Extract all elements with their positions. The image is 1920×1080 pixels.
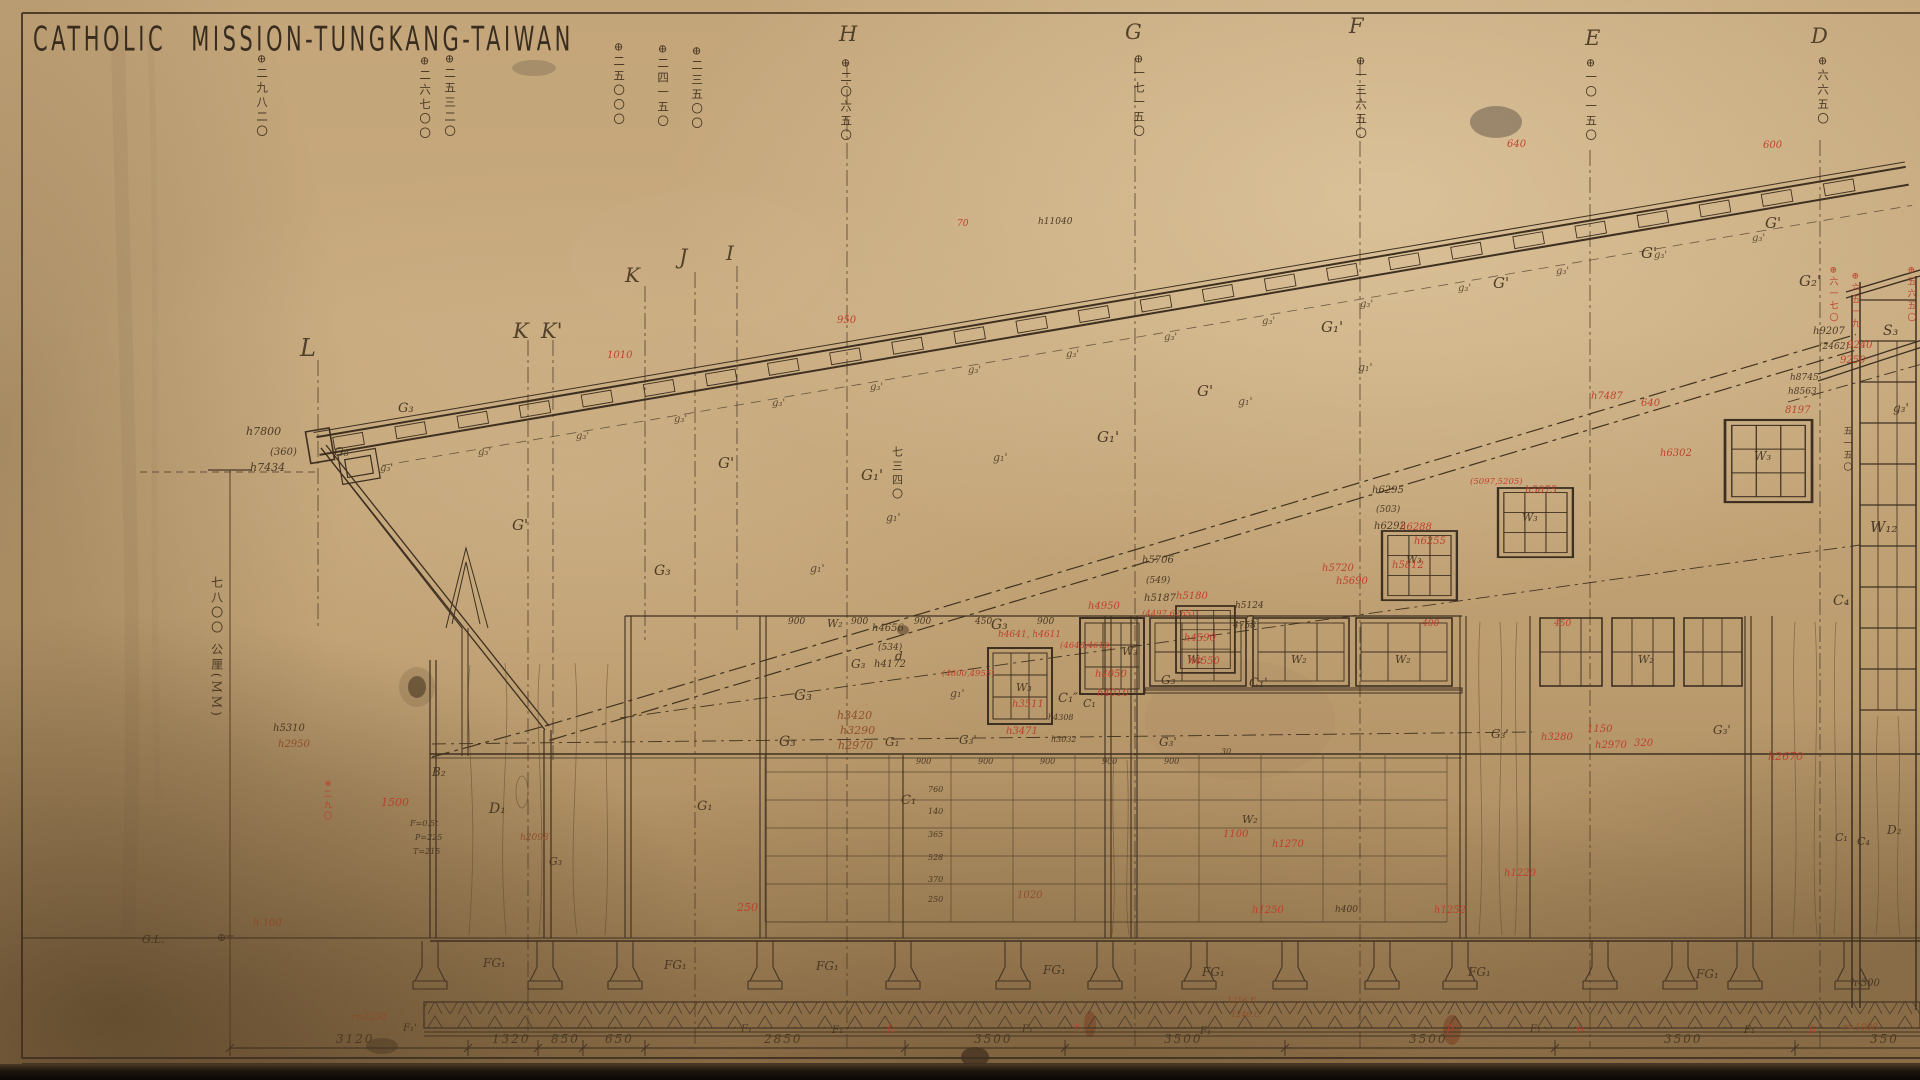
- bottom-dimension: 1320: [492, 1033, 531, 1045]
- annotation-label: h3420: [837, 710, 872, 721]
- purlin-mark: g₃': [1262, 317, 1275, 327]
- annotation-label: FG₁: [1696, 968, 1719, 980]
- annotation-label: h5690: [1336, 577, 1368, 587]
- annotation-label: h6288: [1400, 523, 1432, 533]
- annotation-label: h4641, h4611: [998, 631, 1061, 640]
- annotation-label: F₁: [1530, 1025, 1541, 1035]
- annotation-label: h8745: [1790, 374, 1819, 383]
- annotation-label: D₂: [1887, 824, 1901, 836]
- annotation-label: f₁: [1074, 1025, 1082, 1035]
- annotation-label: h 100: [253, 919, 282, 929]
- bottom-dimension: 350: [1870, 1033, 1899, 1045]
- annotation-label: 760: [928, 786, 943, 794]
- annotation-label: h2970: [1595, 741, 1627, 751]
- annotation-label: G₃: [991, 618, 1008, 632]
- annotation-label: h4308: [1048, 714, 1074, 722]
- annotation-label: C₁″: [1058, 692, 1078, 705]
- left-scale-label: 七八〇〇 公厘(MM): [210, 576, 223, 719]
- purlin-mark: g₃': [772, 399, 785, 409]
- purlin-mark: g₃': [576, 432, 589, 442]
- annotation-label: h5706: [1142, 556, 1174, 566]
- annotation-label: (549): [1146, 577, 1170, 586]
- annotation-label: 600: [1763, 141, 1782, 151]
- grid-letter: H: [839, 24, 857, 45]
- annotation-label: 900: [914, 618, 931, 627]
- annotation-label: F₁: [1744, 1026, 1755, 1036]
- annotation-label: h3290: [840, 725, 875, 736]
- annotation-label: (4648,4610): [1060, 642, 1113, 651]
- annotation-label: W₂: [1291, 654, 1307, 665]
- annotation-label: 400: [1422, 620, 1439, 629]
- annotation-label: h3280: [1541, 733, 1573, 743]
- annotation-label: W₂: [827, 618, 843, 629]
- annotation-label: G₃: [851, 658, 865, 670]
- annotation-label: F₁: [1200, 1027, 1211, 1037]
- annotation-label: ⊕六五一九: [1849, 272, 1858, 331]
- annotation-label: h5187: [1144, 594, 1176, 604]
- grid-letter: G: [1125, 22, 1142, 43]
- elevation-mark: ⊕二九八二〇: [256, 54, 268, 139]
- annotation-label: C₁: [901, 794, 916, 807]
- annotation-label: T=215: [413, 848, 440, 856]
- annotation-label: f₁: [1809, 1025, 1817, 1035]
- annotation-label: G₁: [697, 800, 713, 813]
- annotation-label: 1100: [1223, 830, 1248, 840]
- annotation-label: G₁': [1097, 430, 1119, 445]
- annotation-label: G₁': [1321, 320, 1343, 335]
- bottom-dimension: 2850: [764, 1033, 803, 1045]
- annotation-label: G₂': [1799, 274, 1821, 289]
- annotation-label: 900: [1040, 758, 1055, 766]
- annotation-label: 528: [928, 854, 943, 862]
- annotation-label: F₁': [403, 1024, 417, 1034]
- annotation-label: 640: [1507, 140, 1526, 150]
- annotation-label: W₃: [1754, 450, 1771, 462]
- purlin-mark: g₁': [1358, 362, 1372, 373]
- annotation-label: F₁: [1022, 1025, 1033, 1035]
- annotation-label: C₁': [1249, 677, 1268, 690]
- annotation-label: h1220: [1504, 869, 1536, 879]
- annotation-label: W₂: [1395, 654, 1411, 665]
- annotation-label: r=2250: [351, 1014, 386, 1023]
- annotation-label: 七三四〇: [891, 446, 903, 502]
- annotation-label: G': [1197, 384, 1213, 399]
- purlin-mark: g₃': [1752, 234, 1765, 244]
- annotation-label: W₁₂: [1870, 520, 1897, 535]
- annotation-label: r=1000: [1843, 1024, 1878, 1033]
- annotation-label: h6302: [1660, 449, 1692, 459]
- annotation-label: h2950: [278, 740, 310, 750]
- annotation-label: W₂: [1638, 654, 1654, 665]
- annotation-label: W₂: [1187, 654, 1203, 665]
- annotation-label: 900: [788, 618, 805, 627]
- annotation-label: 900: [851, 618, 868, 627]
- grid-letter: F: [1349, 16, 1364, 37]
- annotation-label: FG₁: [483, 957, 506, 969]
- annotation-label: 8197: [1785, 406, 1810, 416]
- annotation-label: h6292: [1374, 522, 1406, 532]
- annotation-label: h3471: [1006, 727, 1038, 737]
- elevation-mark: ⊕一七一五〇: [1133, 54, 1145, 139]
- annotation-label: h4550: [1188, 657, 1220, 667]
- annotation-label: h2670: [1768, 751, 1803, 762]
- annotation-label: h4010: [1097, 689, 1129, 699]
- grid-letter: D: [1811, 26, 1828, 47]
- bottom-dimension: 3500: [1409, 1033, 1448, 1045]
- annotation-label: h6295: [1372, 486, 1404, 496]
- annotation-label: (4497,6265): [1142, 610, 1195, 619]
- purlin-mark: g₃': [1458, 284, 1471, 294]
- bottom-dimension: 3500: [1664, 1033, 1703, 1045]
- annotation-label: 900: [1102, 758, 1117, 766]
- annotation-label: (5097,5205): [1470, 478, 1523, 487]
- elevation-mark: ⊕二四一五〇: [657, 44, 669, 129]
- annotation-label: G₃: [794, 688, 812, 703]
- annotation-label: h5875: [1525, 486, 1557, 496]
- annotation-label: h5180: [1176, 592, 1208, 602]
- annotation-label: G₃': [1491, 728, 1509, 740]
- purlin-mark: g₃': [478, 448, 491, 458]
- annotation-label: h4172: [874, 660, 906, 670]
- grid-letter: L: [300, 336, 316, 360]
- annotation-label: h4050: [1095, 670, 1127, 680]
- annotation-label: G₃': [959, 734, 977, 746]
- annotation-label: h7434: [250, 462, 285, 473]
- annotation-label: G₃': [1159, 736, 1177, 748]
- annotation-label: h5310: [273, 724, 305, 734]
- purlin-mark: g₃': [1360, 300, 1373, 310]
- annotation-label: f₁: [1447, 1024, 1455, 1034]
- annotation-label: 1216.F.: [1227, 997, 1257, 1005]
- annotation-label: 900: [1164, 758, 1179, 766]
- annotation-label: FG₁: [1202, 966, 1225, 978]
- annotation-label: G₃: [779, 735, 796, 749]
- annotation-label: h9207: [1813, 327, 1845, 337]
- bottom-dimension: 3500: [974, 1033, 1013, 1045]
- elevation-mark: ⊕六六五〇: [1817, 56, 1829, 127]
- purlin-mark: g₁': [950, 688, 964, 699]
- annotation-label: g₃': [1893, 402, 1909, 414]
- annotation-label: h5720: [1322, 564, 1354, 574]
- annotation-label: 450: [1554, 620, 1571, 629]
- annotation-label: G₃: [398, 402, 414, 415]
- annotation-label: 1010: [607, 351, 632, 361]
- annotation-label: W₃: [1122, 646, 1138, 657]
- purlin-mark: g₃': [1164, 333, 1177, 343]
- annotation-label: f₁: [1577, 1024, 1585, 1034]
- purlin-mark: g₃': [870, 383, 883, 393]
- annotation-label: G.L.: [142, 934, 165, 945]
- annotation-label: 370: [928, 876, 943, 884]
- annotation-label: 250: [737, 902, 758, 913]
- annotation-label: G₁: [885, 736, 899, 748]
- annotation-label: G₃': [1713, 724, 1731, 736]
- annotation-label: 900: [1037, 618, 1054, 627]
- grid-letter: K: [513, 321, 529, 342]
- annotation-label: h4950: [1088, 602, 1120, 612]
- annotation-label: h1252: [1434, 906, 1466, 916]
- annotation-label: h8563: [1788, 388, 1817, 397]
- annotation-label: f₁: [887, 1025, 895, 1035]
- annotation-label: 250: [928, 896, 943, 904]
- purlin-mark: g₁': [810, 563, 824, 574]
- annotation-label: W₃: [1406, 554, 1422, 565]
- annotation-label: 1150: [1587, 725, 1612, 735]
- annotation-label: G': [1765, 216, 1781, 231]
- annotation-label: G₃: [654, 564, 671, 578]
- annotation-label: 1020: [1017, 891, 1042, 901]
- annotation-label: G': [512, 518, 528, 533]
- annotation-label: (4600,4955): [942, 670, 995, 679]
- elevation-mark: ⊕二六七〇〇: [419, 56, 431, 141]
- annotation-label: 320: [1634, 739, 1653, 749]
- annotation-label: W₃: [1522, 512, 1538, 523]
- purlin-mark: g₁': [1238, 396, 1252, 407]
- elevation-mark: ⊕二五三二〇: [444, 54, 456, 139]
- annotation-label: F₁: [832, 1026, 843, 1036]
- annotation-label: 365: [928, 831, 943, 839]
- annotation-label: 70: [957, 220, 968, 229]
- annotation-label: ⊕六一七〇: [1827, 266, 1836, 325]
- annotation-label: G₃: [549, 856, 562, 867]
- purlin-mark: g₃': [968, 366, 981, 376]
- annotation-label: G₈: [334, 446, 348, 458]
- annotation-label: W₃: [1016, 682, 1032, 693]
- annotation-label: 140: [928, 808, 943, 816]
- annotation-label: (503): [1376, 506, 1400, 515]
- annotation-label: h6255: [1414, 537, 1446, 547]
- annotation-label: h1250: [1252, 906, 1284, 916]
- purlin-mark: g₁': [886, 512, 900, 523]
- annotation-label: FG₁: [816, 960, 839, 972]
- annotation-label: h3511: [1012, 700, 1044, 710]
- annotation-label: h11040: [1038, 218, 1072, 227]
- purlin-mark: g₃': [1556, 267, 1569, 277]
- annotation-label: S₃: [1883, 324, 1898, 338]
- annotation-label: FG₁: [664, 959, 687, 971]
- annotation-label: FG₁: [1043, 964, 1066, 976]
- annotation-label: D₁: [489, 802, 506, 816]
- annotation-label: G₃: [1161, 674, 1175, 686]
- annotation-label: G': [1493, 276, 1509, 291]
- drawing-sheet: CATHOLIC MISSION-TUNGKANG-TAIWAN LKK'KJI…: [0, 0, 1920, 1080]
- annotation-label: h5812: [1392, 561, 1424, 571]
- annotation-label: 900: [916, 758, 931, 766]
- bottom-dimension: 3120: [336, 1033, 375, 1045]
- elevation-mark: ⊕二五〇〇〇: [613, 42, 625, 127]
- bottom-dimension: 850: [551, 1033, 580, 1045]
- elevation-mark: ⊕二〇六五〇: [840, 58, 852, 143]
- annotation-label: G': [718, 456, 734, 471]
- annotation-label: h2098: [520, 834, 549, 843]
- annotation-label: C₄: [1833, 594, 1849, 608]
- annotation-label: C₄: [1857, 836, 1870, 847]
- annotation-label: B₂: [432, 766, 446, 778]
- annotation-label: W₂: [1242, 814, 1258, 825]
- annotation-label: (360): [270, 448, 297, 458]
- annotation-label: 五一五〇: [1841, 426, 1850, 474]
- annotation-label: h7487: [1591, 392, 1623, 402]
- annotation-label: h2970: [838, 740, 873, 751]
- grid-letter: J: [679, 247, 687, 268]
- purlin-mark: g₃': [1654, 251, 1667, 261]
- annotation-label: d: [895, 650, 903, 662]
- bottom-dimension: 650: [605, 1033, 634, 1045]
- annotation-label: F=0.5t: [410, 820, 438, 828]
- annotation-label: h400: [1335, 906, 1358, 915]
- annotation-label: G': [1641, 246, 1657, 261]
- annotation-label: 450: [975, 618, 992, 627]
- annotation-label: P=225: [415, 834, 442, 842]
- annotation-label: ⊕五六五〇: [1905, 266, 1914, 325]
- annotation-label: h1270: [1272, 840, 1304, 850]
- annotation-label: 9240: [1847, 341, 1872, 351]
- purlin-mark: g₁': [993, 452, 1007, 463]
- annotation-label: 950: [837, 316, 856, 326]
- annotation-label: 1500: [381, 797, 409, 808]
- annotation-label: C₁: [1835, 832, 1848, 843]
- annotation-label: 30: [1221, 748, 1231, 756]
- annotation-label: ⊕二九〇: [323, 780, 331, 823]
- annotation-layer: LKK'KJIHGFED⊕二九八二〇⊕二六七〇〇⊕二五三二〇⊕二五〇〇〇⊕二四一…: [0, 0, 1920, 1080]
- annotation-label: h5124: [1235, 602, 1264, 611]
- annotation-label: h7800: [246, 426, 281, 437]
- annotation-label: h4656: [872, 624, 904, 634]
- annotation-label: C₁: [1083, 698, 1096, 709]
- annotation-label: G₁': [861, 468, 883, 483]
- purlin-mark: g₃': [380, 464, 393, 474]
- bottom-dimension: 3500: [1164, 1033, 1203, 1045]
- annotation-label: (2462): [1819, 343, 1849, 352]
- scan-edge: [0, 1064, 1920, 1080]
- annotation-label: h4590: [1184, 634, 1216, 644]
- grid-letter: I: [726, 243, 734, 263]
- elevation-mark: ⊕二三五〇〇: [691, 46, 703, 131]
- annotation-label: ⊕: [217, 932, 226, 943]
- annotation-label: FG₁: [1468, 966, 1491, 978]
- annotation-label: (534): [878, 644, 902, 653]
- annotation-label: G₃: [1245, 614, 1259, 626]
- purlin-mark: g₃': [674, 415, 687, 425]
- grid-letter: K': [541, 321, 562, 342]
- elevation-mark: ⊕一〇一五〇: [1585, 58, 1597, 143]
- grid-letter: K: [625, 265, 640, 285]
- annotation-label: 1246.C.: [1231, 1011, 1262, 1019]
- purlin-mark: g₃': [1066, 350, 1079, 360]
- annotation-label: 4758: [1233, 622, 1256, 631]
- annotation-label: h-300: [1851, 979, 1880, 989]
- elevation-mark: ⊕一三六五〇: [1355, 56, 1367, 141]
- grid-letter: E: [1585, 28, 1600, 49]
- annotation-label: F₁: [741, 1025, 752, 1035]
- annotation-label: h3032: [1051, 736, 1077, 744]
- annotation-label: 900: [978, 758, 993, 766]
- annotation-label: 640: [1641, 399, 1660, 409]
- annotation-label: 9250: [1840, 356, 1865, 366]
